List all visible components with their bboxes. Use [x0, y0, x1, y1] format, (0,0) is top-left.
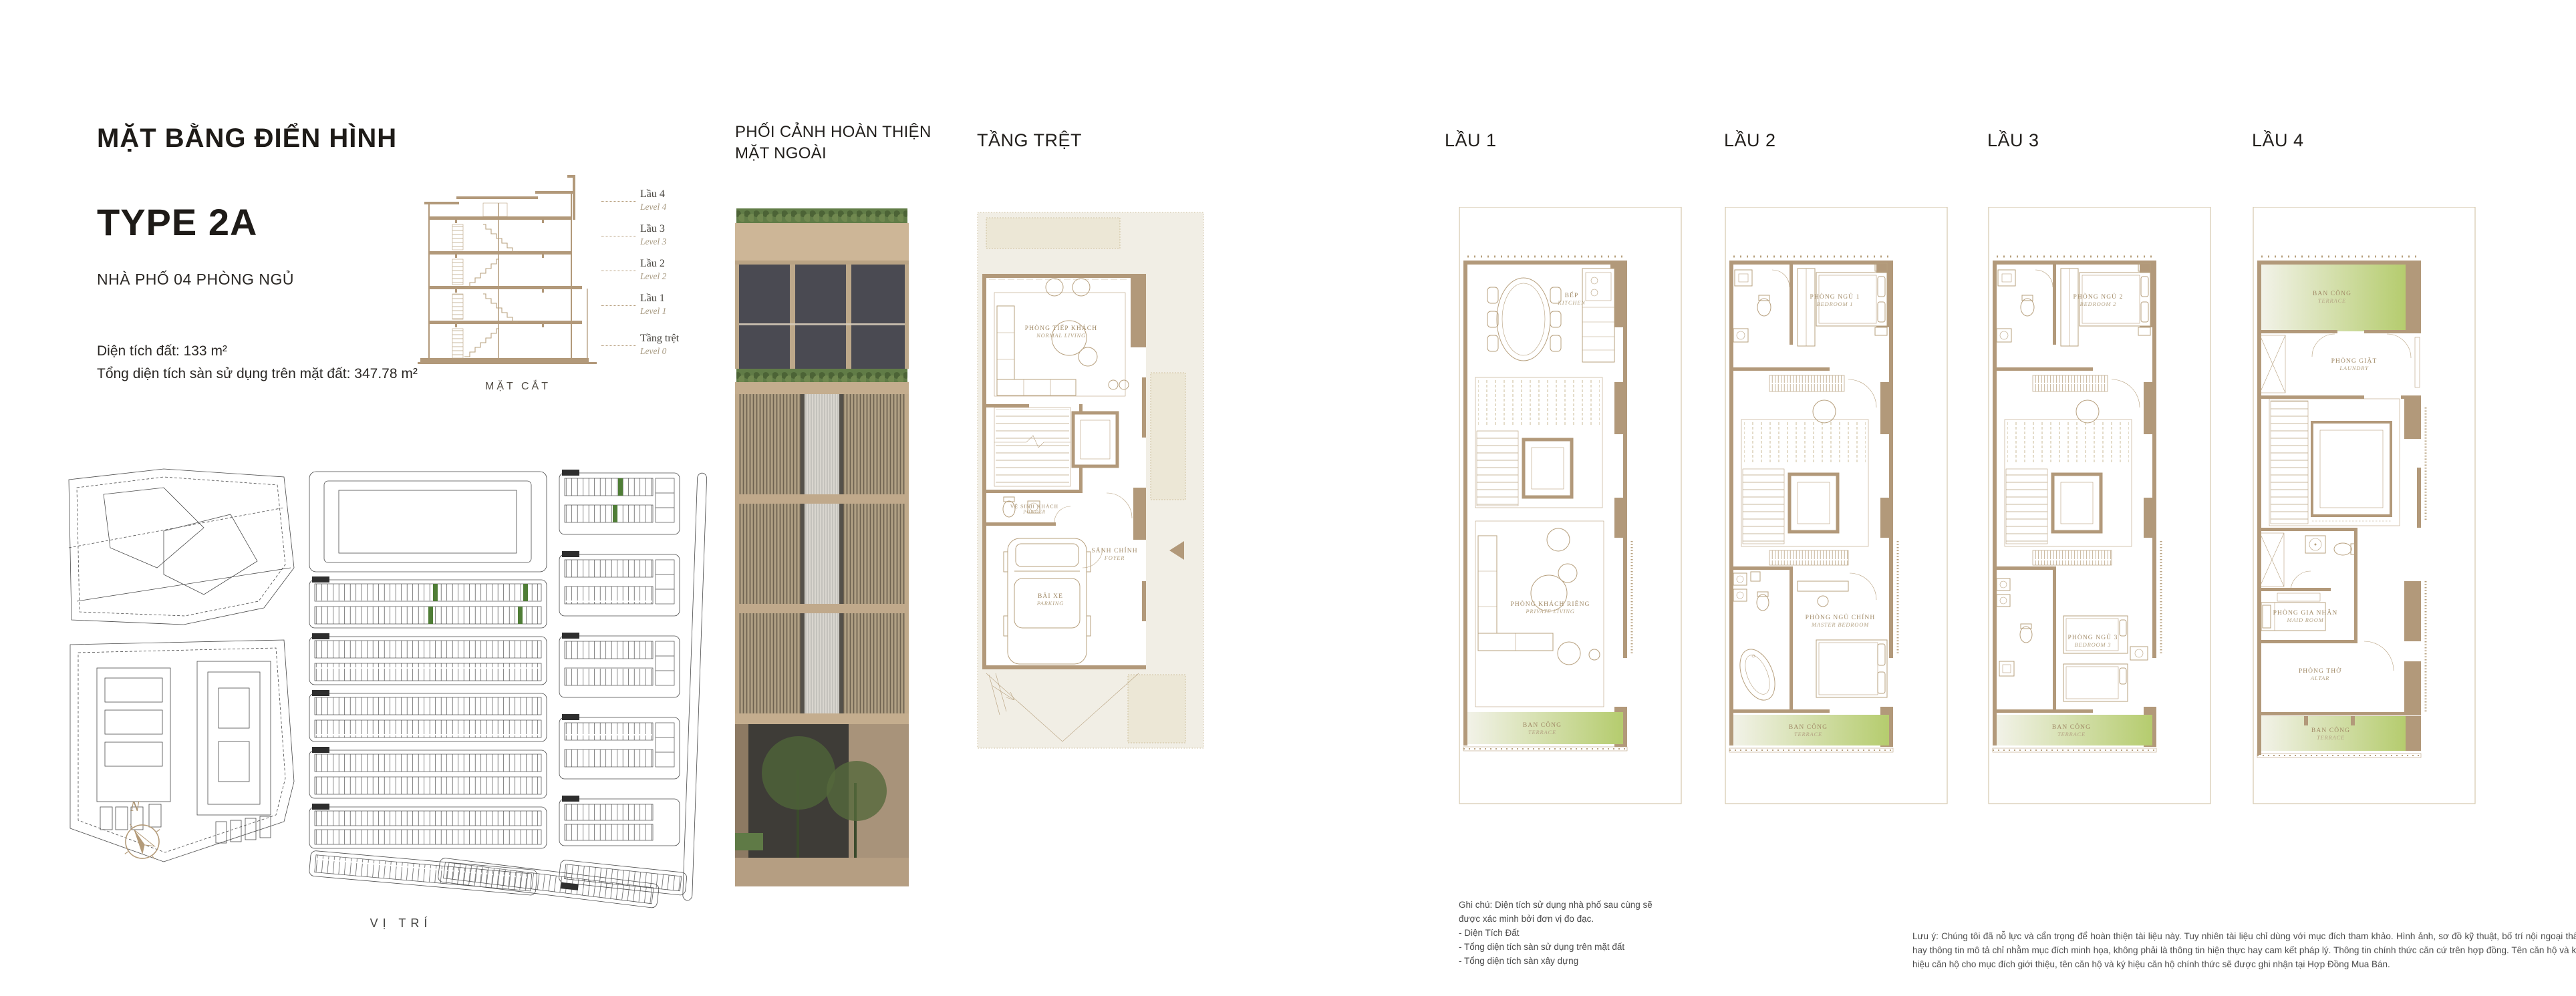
type-subtitle: NHÀ PHỐ 04 PHÒNG NGỦ — [97, 271, 418, 289]
site-estate-north — [69, 469, 294, 625]
section-level-0: Tầng trệt Level 0 — [640, 333, 740, 357]
elevator — [2053, 474, 2101, 532]
room-label-bedroom1: PHÒNG NGỦ 1BEDROOM 1 — [1810, 294, 1860, 307]
note-ghi-chu: Ghi chú: Diện tích sử dụng nhà phố sau c… — [1459, 898, 1833, 969]
room-label-living: PHÒNG TIẾP KHÁCHNORMAL LIVING — [1025, 325, 1097, 339]
wardrobe — [2033, 375, 2108, 391]
type-name: TYPE 2A — [97, 200, 418, 244]
elevator — [1073, 413, 1117, 466]
elevator — [1524, 440, 1572, 497]
leader-line — [601, 305, 636, 306]
note-luu-y: Lưu ý: Chúng tôi đã nỗ lực và cẩn trọng … — [1912, 930, 2576, 972]
site-estate-south — [70, 640, 294, 862]
room-label-bedroom2: PHÒNG NGỦ 2BEDROOM 2 — [2073, 294, 2124, 307]
room-label-terrace: BAN CÔNGTERRACE — [1789, 724, 1828, 737]
section-title: MẶT CẮT — [418, 381, 618, 393]
room-label-parking: BÃI XEPARKING — [1037, 593, 1064, 607]
floorplan-lau-4-drawing — [2251, 207, 2481, 808]
wardrobe — [2033, 550, 2112, 565]
room-label-terrace-top: BAN CÔNGTERRACE — [2313, 291, 2351, 304]
louver-floor-3 — [735, 613, 909, 713]
room-label-terrace-bottom: BAN CÔNGTERRACE — [2311, 727, 2350, 741]
site-lot-blocks-right — [558, 470, 707, 902]
section-level-1: Lầu 1 Level 1 — [640, 293, 740, 317]
plan-title-lau-4: LẦU 4 — [2252, 130, 2304, 151]
leader-line — [601, 235, 636, 236]
floorplan-lau-4: BAN CÔNGTERRACE PHÒNG GIẶTLAUNDRY PHÒNG … — [2251, 207, 2481, 808]
leader-line — [601, 200, 636, 202]
closet — [2061, 269, 2078, 346]
floorplan-lau-3: PHÒNG NGỦ 2BEDROOM 2 PHÒNG NGỦ 3BEDROOM … — [1986, 207, 2216, 808]
section-stairs — [452, 203, 518, 358]
room-label-maid-room: PHÒNG GIA NHÂNMAID ROOM — [2273, 610, 2338, 623]
plan-title-lau-1: LẦU 1 — [1445, 130, 1497, 151]
room-label-master-bedroom: PHÒNG NGỦ CHÍNHMASTER BEDROOM — [1806, 615, 1876, 628]
kitchen-counter — [1582, 269, 1614, 362]
page-title: MẶT BẰNG ĐIỂN HÌNH — [97, 124, 418, 154]
site-clubhouse — [309, 472, 547, 572]
leader-line — [601, 270, 636, 271]
compass-north-label: N — [130, 798, 140, 815]
louver-floor-2 — [735, 504, 909, 604]
area-line-2: Tổng diện tích sàn sử dụng trên mặt đất:… — [97, 363, 418, 385]
ground-floor — [735, 724, 909, 886]
tree — [762, 736, 835, 810]
plan-title-tang-tret: TẦNG TRỆT — [977, 130, 1082, 151]
louver-floor-1 — [735, 394, 909, 494]
section-level-4: Lầu 4 Level 4 — [640, 188, 740, 212]
plan-title-lau-2: LẦU 2 — [1724, 130, 1776, 151]
room-label-terrace: BAN CÔNGTERRACE — [2052, 724, 2091, 737]
glass-floor — [735, 265, 909, 382]
floorplan-lau-2: PHÒNG NGỦ 1BEDROOM 1 PHÒNG NGỦ CHÍNHMAST… — [1723, 207, 1953, 808]
area-line-1: Diện tích đất: 133 m² — [97, 341, 418, 362]
room-label-laundry: PHÒNG GIẶTLAUNDRY — [2331, 358, 2378, 371]
room-label-powder: VỆ SINH KHÁCHPOWDER — [1010, 504, 1058, 515]
plan-title-lau-3: LẦU 3 — [1987, 130, 2039, 151]
elevation-header: PHỐI CẢNH HOÀN THIỆN MẶT NGOÀI — [735, 122, 956, 165]
roof-hedge — [736, 208, 907, 223]
closet — [1798, 269, 1815, 346]
site-plan-drawing — [63, 468, 708, 908]
room-label-private-living: PHÒNG KHÁCH RIÊNGPRIVATE LIVING — [1511, 601, 1590, 615]
floorplan-tang-tret: PHÒNG TIẾP KHÁCHNORMAL LIVING VỆ SINH KH… — [976, 207, 1206, 808]
wardrobe — [1769, 375, 1844, 391]
leader-line — [601, 345, 636, 346]
elevation-render — [735, 208, 910, 886]
elevator — [1790, 474, 1838, 532]
section-block: Lầu 4 Level 4 Lầu 3 Level 3 Lầu 2 Level … — [418, 160, 732, 414]
room-label-foyer: SẢNH CHÍNHFOYER — [1091, 548, 1137, 561]
section-drawing — [418, 160, 618, 381]
room-label-terrace: BAN CÔNGTERRACE — [1523, 722, 1562, 735]
elevation-drawing — [735, 208, 910, 886]
section-level-2: Lầu 2 Level 2 — [640, 258, 740, 282]
room-label-bedroom3: PHÒNG NGỦ 3BEDROOM 3 — [2068, 635, 2118, 648]
floorplan-lau-1: BẾPKITCHEN PHÒNG KHÁCH RIÊNGPRIVATE LIVI… — [1457, 207, 1687, 808]
staircase — [994, 407, 1070, 486]
section-level-3: Lầu 3 Level 3 — [640, 223, 740, 247]
info-block: MẶT BẰNG ĐIỂN HÌNH TYPE 2A NHÀ PHỐ 04 PH… — [97, 124, 418, 384]
compass-icon — [112, 812, 172, 871]
site-plan-block: N VỊ TRÍ — [63, 468, 708, 935]
tree — [827, 761, 887, 821]
room-label-altar: PHÒNG THỜALTAR — [2299, 668, 2341, 681]
site-plan-title: VỊ TRÍ — [287, 917, 515, 931]
wardrobe — [1769, 550, 1848, 565]
room-label-kitchen: BẾPKITCHEN — [1558, 293, 1586, 306]
site-lot-blocks-middle — [309, 576, 659, 908]
